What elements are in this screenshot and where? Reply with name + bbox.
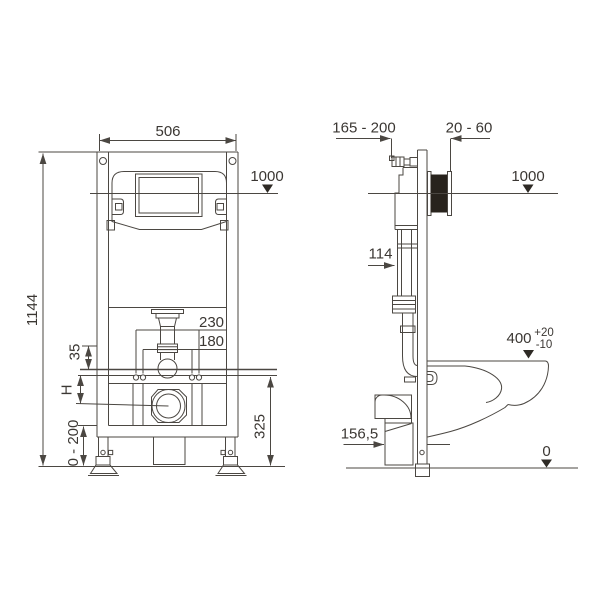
flush-pipe-front <box>152 310 184 379</box>
dim-400-minus: -10 <box>536 339 553 351</box>
level-1000-side: 1000 <box>368 168 558 194</box>
drain-elbow-side <box>375 395 413 465</box>
dim-h-label: H <box>58 385 75 396</box>
level-0-label: 0 <box>542 443 550 460</box>
dim-1144-label: 1144 <box>24 294 41 326</box>
dim-180-label: 180 <box>199 333 224 350</box>
dim-35: 35 <box>66 344 97 370</box>
dim-400-label: 400 <box>506 330 531 347</box>
toilet-bowl-profile <box>427 361 549 445</box>
level-marker-400 <box>523 350 534 359</box>
dim-114-label: 114 <box>369 246 393 263</box>
soil-box <box>385 423 413 465</box>
dim-165-200: 165 - 200 <box>332 120 395 139</box>
dim-325-label: 325 <box>251 414 268 439</box>
dim-165-200-label: 165 - 200 <box>332 120 395 137</box>
bowl-mount-boss <box>428 372 438 385</box>
dim-325: 325 <box>251 377 270 466</box>
dim-20-60-label: 20 - 60 <box>446 120 493 137</box>
water-supply-valve <box>390 139 418 167</box>
dim-400: 400 +20 -10 <box>506 327 553 359</box>
dim-400-plus: +20 <box>534 327 554 339</box>
frame-hole-right <box>229 158 236 165</box>
flush-bend-side <box>401 313 418 382</box>
dim-156-5-label: 156,5 <box>341 426 379 443</box>
access-panel-outer <box>136 174 203 217</box>
cistern-side-profile <box>393 168 418 314</box>
side-foot <box>416 464 430 477</box>
bowl-inner-curve <box>465 366 502 403</box>
level-marker-0 <box>541 460 552 468</box>
dim-506-label: 506 <box>155 123 180 140</box>
side-view: 1000 165 - 200 20 - 60 114 <box>332 120 578 477</box>
dim-0-200-label: 0 - 200 <box>65 420 82 467</box>
technical-drawing-page: 230 180 <box>0 0 600 600</box>
level-0: 0 <box>346 443 578 468</box>
dim-0-200: 0 - 200 <box>65 420 97 467</box>
dim-156-5: 156,5 <box>341 426 384 445</box>
level-1000-front-label: 1000 <box>250 168 283 185</box>
wc-frame-drawing: 230 180 <box>0 0 600 600</box>
dim-506: 506 <box>100 123 237 151</box>
frame-hole-left <box>100 158 107 165</box>
dim-114: 114 <box>368 246 395 266</box>
lower-structure <box>88 384 247 476</box>
dim-20-60: 20 - 60 <box>446 120 493 139</box>
flush-plate-assembly <box>428 139 452 216</box>
access-panel-inner <box>139 178 199 214</box>
inspection-box <box>154 437 186 465</box>
dim-230-label: 230 <box>199 314 224 331</box>
level-1000-side-label: 1000 <box>511 168 544 185</box>
crossbar-band <box>78 370 277 384</box>
dim-1144: 1144 <box>24 154 43 466</box>
level-marker-side <box>523 185 534 194</box>
level-marker-front <box>262 185 273 194</box>
dim-35-label: 35 <box>66 344 83 361</box>
front-view: 230 180 <box>24 123 285 476</box>
cistern-front <box>107 172 228 231</box>
